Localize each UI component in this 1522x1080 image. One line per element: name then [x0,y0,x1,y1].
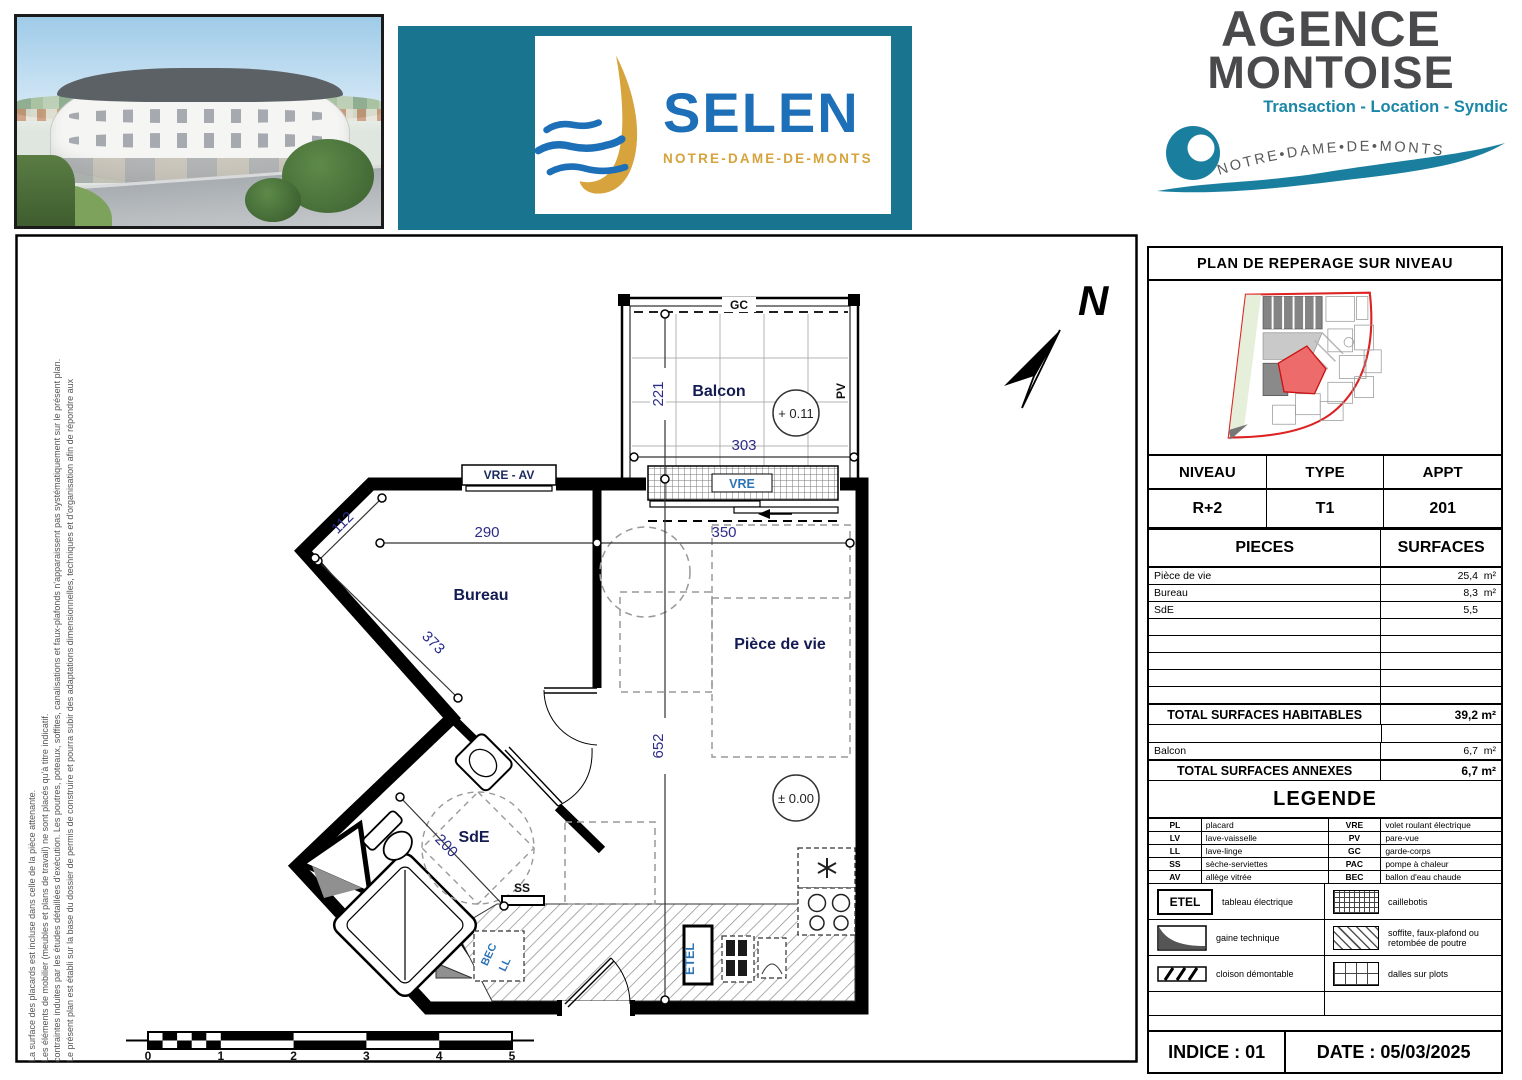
legend-symbol-row: gaine technique soffite, faux-plafond ou… [1149,920,1501,956]
bush [245,178,301,222]
building-photo [14,14,384,229]
spacer-row [1149,725,1501,743]
panel-title: PLAN DE REPERAGE SUR NIVEAU [1149,248,1501,281]
room-label-balcon: Balcon [692,383,745,400]
appt-header: APPT [1383,456,1501,488]
agence-title-line1: AGENCE [1221,6,1441,52]
etel-board: ETEL [683,926,712,984]
info-value-row: R+2 T1 201 [1149,490,1501,530]
agence-services: Transaction - Location - Syndic [1152,98,1510,117]
hall-appliances [722,936,786,982]
dim-290: 290 [474,524,499,541]
scale-1: 1 [217,1049,224,1063]
total-habitables-row: TOTAL SURFACES HABITABLES 39,2 m² [1149,704,1501,725]
legend-abbr-row: SSsèche-serviettes PACpompe à chaleur [1149,858,1501,871]
annex-row: Balcon 6,7m² [1149,743,1501,760]
agence-montoise-logo: AGENCE MONTOISE Transaction - Location -… [1152,6,1510,246]
site-plan-icon [1185,287,1465,449]
indice: INDICE : 01 [1149,1032,1286,1072]
legend-abbr-row: PLplacard VREvolet roulant électrique [1149,819,1501,832]
dim-350: 350 [711,524,736,541]
plan-sheet: SELEN NOTRE-DAME-DE-MONTS AGENCE MONTOIS… [0,0,1522,1080]
room-label-piece-de-vie: Pièce de vie [734,636,826,653]
legend-symbol-row: cloison démontable dalles sur plots [1149,956,1501,992]
etel-plan-label: ETEL [683,943,697,975]
disclaimer: La surface des placards est incluse dans… [22,238,80,1062]
dim-303: 303 [731,437,756,454]
pieces-header: PIECES [1149,530,1381,566]
bec-ll-closet: BEC LL [474,931,524,981]
scale-2: 2 [290,1049,297,1063]
building-windows-row1 [69,109,332,124]
type-value: T1 [1266,490,1384,527]
legend-abbr-row: AVallège vitrée BECballon d'eau chaude [1149,871,1501,884]
selen-subtitle: NOTRE-DAME-DE-MONTS [663,151,873,166]
vre-av-label: VRE - AV [484,468,535,482]
selen-banner: SELEN NOTRE-DAME-DE-MONTS [398,26,912,230]
selen-crescent-waves-icon [535,40,659,210]
selen-logo: SELEN NOTRE-DAME-DE-MONTS [535,36,891,214]
caillebotis-symbol [1333,890,1379,914]
building-roof [57,68,344,102]
ss-label: SS [514,881,530,895]
disclaimer-line-1: Le présent plan est établi sur la base d… [64,238,77,1062]
room-label-sde: SdE [458,829,489,846]
vre-label: VRE [729,477,755,491]
niveau-value: R+2 [1149,490,1266,527]
svg-text:± 0.00: ± 0.00 [778,791,814,806]
niveau-header: NIVEAU [1149,456,1266,488]
surface-row-empty [1149,653,1501,670]
surface-row: Bureau 8,3m² [1149,585,1501,602]
balcony-level-marker: + 0.11 [778,406,814,421]
surface-row-empty [1149,670,1501,687]
surface-row: Pièce de vie 25,4m² [1149,568,1501,585]
legend-abbr-row: LLlave-linge GCgarde-corps [1149,845,1501,858]
disclaimer-line-3: Les éléments de mobilier (meubles et pla… [39,238,52,1062]
dim-652: 652 [650,733,667,758]
window-vre-av: VRE - AV [462,465,556,492]
surface-row: SdE 5,5 [1149,602,1501,619]
scale-3: 3 [363,1049,370,1063]
legend-title: LEGENDE [1149,781,1501,819]
agence-title-line2: MONTOISE [1207,52,1454,95]
dim-221: 221 [650,381,667,406]
empty-row [1149,1016,1501,1032]
surface-row-empty [1149,619,1501,636]
etel-symbol: ETEL [1157,889,1213,915]
gc-label: GC [730,298,748,312]
panel-footer: INDICE : 01 DATE : 05/03/2025 [1149,1032,1501,1072]
info-header-row: NIVEAU TYPE APPT [1149,456,1501,490]
scale-5: 5 [509,1049,516,1063]
agence-swoosh-icon: NOTRE•DAME•DE•MONTS [1153,117,1509,197]
empty-symbol-row [1149,992,1501,1016]
gaine-technique-symbol [1157,925,1207,951]
building-windows-row2 [69,133,332,148]
floor-level-marker: ± 0.00 [773,775,819,821]
cloison-demontable-symbol [1157,966,1207,982]
total-annexes-row: TOTAL SURFACES ANNEXES 6,7 m² [1149,760,1501,781]
kitchen [798,848,855,935]
floor-plan: GC PV + 0.11 Balcon VRE - AV [14,233,1141,1066]
site-location-plan [1149,281,1501,456]
legend-abbr-row: LVlave-vaisselle PVpare-vue [1149,832,1501,845]
pv-label: PV [834,383,848,399]
disclaimer-line-2: contraintes induites par les études déta… [51,238,64,1062]
legend-symbol-row: ETEL tableau électrique caillebotis [1149,884,1501,920]
disclaimer-line-4: La surface des placards est incluse dans… [26,238,39,1062]
north-arrow-icon: N [1004,277,1110,408]
north-label: N [1078,277,1110,324]
scale-0: 0 [145,1049,152,1063]
hedge [17,155,75,226]
appt-value: 201 [1383,490,1501,527]
scale-bar: 0 1 2 3 4 5 [126,1032,534,1063]
surfaces-header-row: PIECES SURFACES [1149,530,1501,568]
date: DATE : 05/03/2025 [1286,1032,1501,1072]
dalles-sur-plots-symbol [1333,962,1379,986]
selen-name: SELEN [663,85,873,141]
surface-row-empty [1149,687,1501,704]
scale-4: 4 [436,1049,443,1063]
type-header: TYPE [1266,456,1384,488]
room-label-bureau: Bureau [453,587,508,604]
surface-row-empty [1149,636,1501,653]
soffite-symbol [1333,926,1379,950]
info-panel: PLAN DE REPERAGE SUR NIVEAU [1147,246,1503,1074]
surfaces-header: SURFACES [1381,530,1501,566]
